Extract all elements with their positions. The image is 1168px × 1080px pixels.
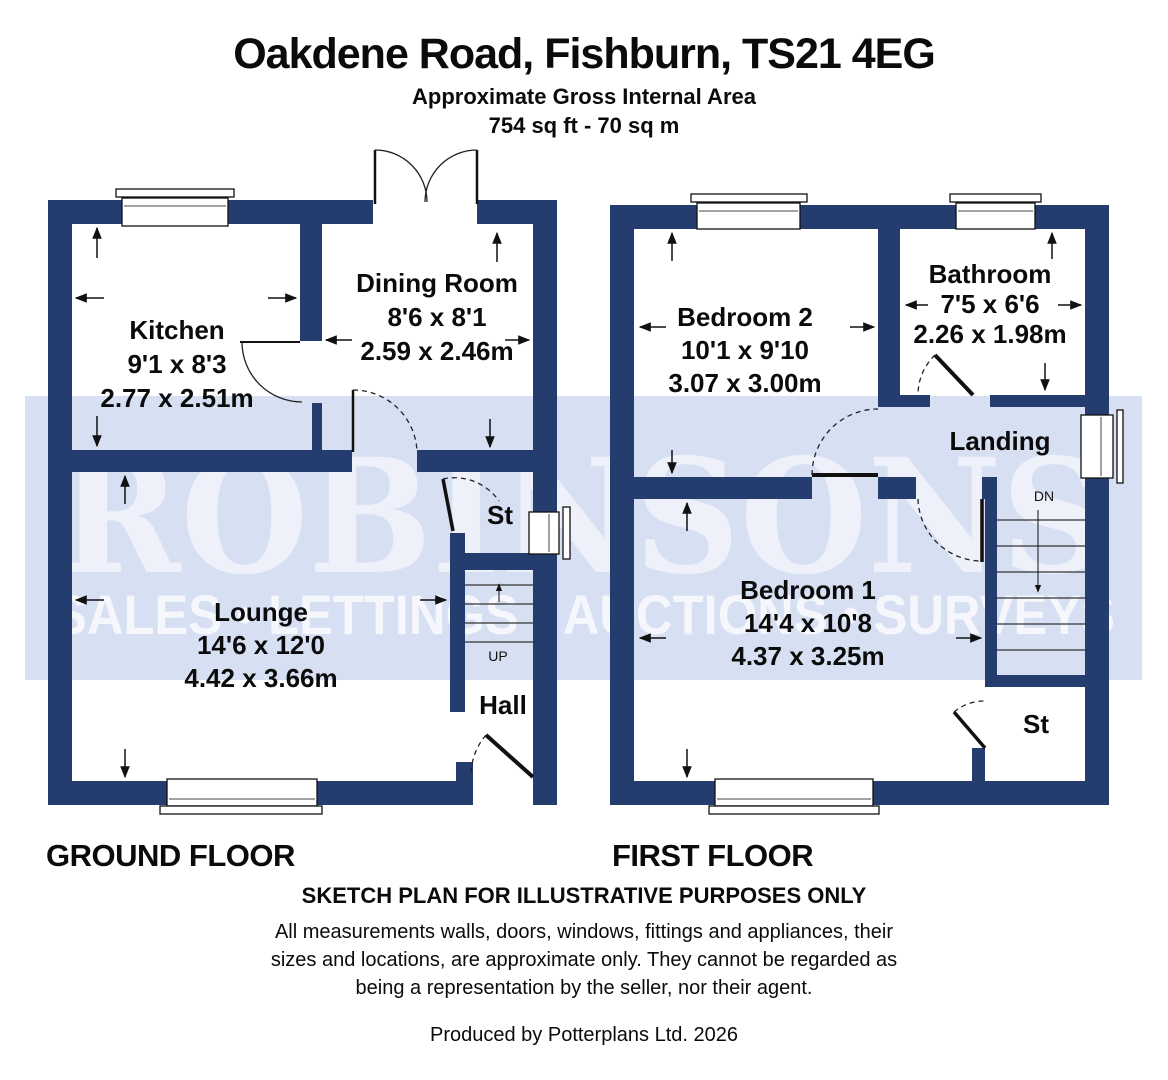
first-floor-store-door	[954, 701, 985, 748]
ground-floor-stairs	[465, 584, 533, 642]
dining-room-door	[353, 390, 417, 452]
stairs-down-label: DN	[1034, 488, 1054, 504]
disclaimer-line-3: being a representation by the seller, no…	[0, 974, 1168, 1002]
bedroom1-label: Bedroom 1	[740, 575, 876, 605]
bathroom-label: Bathroom	[929, 259, 1052, 289]
ground-floor-plan: Kitchen 9'1 x 8'3 2.77 x 2.51m Dining Ro…	[48, 150, 570, 814]
lounge-imperial: 14'6 x 12'0	[197, 630, 325, 660]
bedroom2-imperial: 10'1 x 9'10	[681, 335, 809, 365]
bedroom1-metric: 4.37 x 3.25m	[731, 641, 884, 671]
first-floor-windows	[691, 194, 1123, 814]
bedroom2-label: Bedroom 2	[677, 302, 813, 332]
bathroom-window	[950, 194, 1041, 229]
first-floor-doors	[812, 355, 985, 748]
bedroom1-door	[918, 499, 982, 562]
hall-label: Hall	[479, 690, 527, 720]
bedroom2-window	[691, 194, 807, 229]
bedroom1-imperial: 14'4 x 10'8	[744, 608, 872, 638]
first-floor-title: FIRST FLOOR	[612, 838, 813, 874]
dining-room-metric: 2.59 x 2.46m	[360, 336, 513, 366]
bathroom-imperial: 7'5 x 6'6	[940, 289, 1039, 319]
disclaimer-text: All measurements walls, doors, windows, …	[0, 918, 1168, 1002]
produced-by-credit: Produced by Potterplans Ltd. 2026	[0, 1024, 1168, 1047]
bedroom1-window	[709, 779, 879, 814]
floorplan-page: Oakdene Road, Fishburn, TS21 4EG Approxi…	[0, 0, 1168, 1080]
kitchen-window	[116, 189, 234, 226]
kitchen-label: Kitchen	[129, 315, 224, 345]
bedroom2-door	[812, 409, 878, 475]
landing-window	[1081, 410, 1123, 483]
lounge-label: Lounge	[214, 597, 308, 627]
stairs-up-label: UP	[488, 648, 507, 664]
first-floor-plan: Bedroom 2 10'1 x 9'10 3.07 x 3.00m Bathr…	[610, 194, 1123, 814]
front-door	[471, 735, 533, 777]
disclaimer-line-1: All measurements walls, doors, windows, …	[0, 918, 1168, 946]
first-floor-stairs	[997, 510, 1085, 650]
store-window	[529, 507, 570, 559]
lounge-window	[160, 779, 322, 814]
area-subtitle: Approximate Gross Internal Area	[0, 84, 1168, 110]
dining-room-imperial: 8'6 x 8'1	[387, 302, 486, 332]
french-doors	[375, 150, 477, 204]
ground-floor-title: GROUND FLOOR	[46, 838, 295, 874]
bathroom-door	[918, 355, 973, 395]
first-floor-store-label: St	[1023, 709, 1049, 739]
store-label: St	[487, 500, 513, 530]
disclaimer-line-2: sizes and locations, are approximate onl…	[0, 946, 1168, 974]
kitchen-metric: 2.77 x 2.51m	[100, 383, 253, 413]
area-value: 754 sq ft - 70 sq m	[0, 113, 1168, 139]
lounge-metric: 4.42 x 3.66m	[184, 663, 337, 693]
dining-room-label: Dining Room	[356, 268, 518, 298]
kitchen-imperial: 9'1 x 8'3	[127, 349, 226, 379]
bathroom-metric: 2.26 x 1.98m	[913, 319, 1066, 349]
page-title: Oakdene Road, Fishburn, TS21 4EG	[0, 30, 1168, 79]
bedroom2-metric: 3.07 x 3.00m	[668, 368, 821, 398]
landing-label: Landing	[949, 426, 1050, 456]
sketch-plan-note: SKETCH PLAN FOR ILLUSTRATIVE PURPOSES ON…	[0, 883, 1168, 909]
